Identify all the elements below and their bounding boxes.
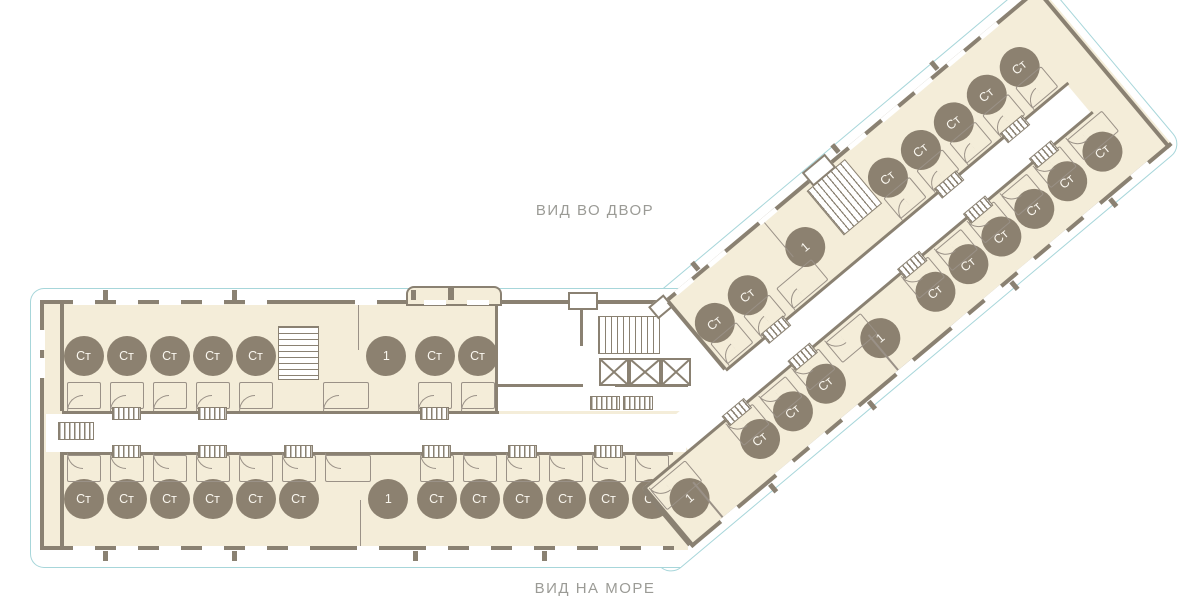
window-gap <box>512 546 534 551</box>
window-gap <box>202 546 224 551</box>
window-gap <box>202 300 224 305</box>
apartment-type-badge: Ст <box>417 479 457 519</box>
apartment-type-badge: Ст <box>236 336 276 376</box>
window-gap <box>159 300 181 305</box>
kitchen-fixture <box>422 445 451 458</box>
balcony-divider-tick <box>232 290 237 300</box>
kitchen-fixture <box>508 445 537 458</box>
balcony-divider-tick <box>232 551 237 561</box>
apartment-type-badge: Ст <box>150 479 190 519</box>
apartment-type-badge: Ст <box>107 336 147 376</box>
window-gap <box>73 546 95 551</box>
window-gap <box>355 300 377 305</box>
window-gap <box>598 546 620 551</box>
apartment-type-badge: Ст <box>193 336 233 376</box>
window-gap <box>116 546 138 551</box>
apartment-type-badge: Ст <box>415 336 455 376</box>
window-gap <box>73 300 95 305</box>
kitchen-fixture <box>198 407 227 420</box>
window-gap <box>357 546 379 551</box>
apartment-type-badge: Ст <box>503 479 543 519</box>
window-gap <box>245 546 267 551</box>
balcony-divider-tick <box>103 551 108 561</box>
stairwell <box>278 326 319 380</box>
kitchen-fixture <box>198 445 227 458</box>
window-gap <box>469 546 491 551</box>
wall <box>580 304 583 346</box>
entry-fixture <box>58 422 94 440</box>
shaft-box <box>568 292 598 310</box>
window-gap <box>288 546 310 551</box>
kitchen-fixture <box>112 445 141 458</box>
kitchen-fixture <box>284 445 313 458</box>
kitchen-fixture <box>112 407 141 420</box>
window-gap <box>424 300 446 305</box>
apartment-type-badge: Ст <box>64 336 104 376</box>
view-label-sea: ВИД НА МОРЕ <box>497 580 693 597</box>
window-gap <box>426 546 448 551</box>
apartment-type-badge: Ст <box>64 479 104 519</box>
kitchen-fixture <box>420 407 449 420</box>
apartment-type-badge: Ст <box>150 336 190 376</box>
apartment-type-badge: Ст <box>460 479 500 519</box>
partition-wall <box>360 500 362 546</box>
apartment-type-badge: Ст <box>546 479 586 519</box>
apartment-type-badge: Ст <box>279 479 319 519</box>
balcony-divider-tick <box>448 288 454 300</box>
balcony-divider-tick <box>411 290 416 300</box>
balcony-divider-tick <box>413 551 418 561</box>
floor-plan: СтСтСтСтСт1СтСтСтСтСтСтСтСт1СтСтСтСтСтСт… <box>0 0 1200 600</box>
apartment-type-badge: Ст <box>458 336 498 376</box>
window-gap <box>245 300 267 305</box>
window-gap <box>555 546 577 551</box>
window-gap <box>467 300 489 305</box>
window-gap <box>159 546 181 551</box>
window-gap <box>116 300 138 305</box>
apartment-type-badge: Ст <box>193 479 233 519</box>
window-gap <box>40 358 45 378</box>
balcony-divider-tick <box>103 290 108 300</box>
apartment-type-badge: Ст <box>236 479 276 519</box>
balcony-divider-tick <box>542 551 547 561</box>
window-gap <box>40 330 45 350</box>
apartment-type-badge: Ст <box>107 479 147 519</box>
partition-wall <box>358 304 360 350</box>
view-label-courtyard: ВИД ВО ДВОР <box>497 202 693 219</box>
diagonal-wing: СтСт1СтСтСтСтСт1СтСтСт1СтСтСтСтСтСт <box>539 0 1172 564</box>
